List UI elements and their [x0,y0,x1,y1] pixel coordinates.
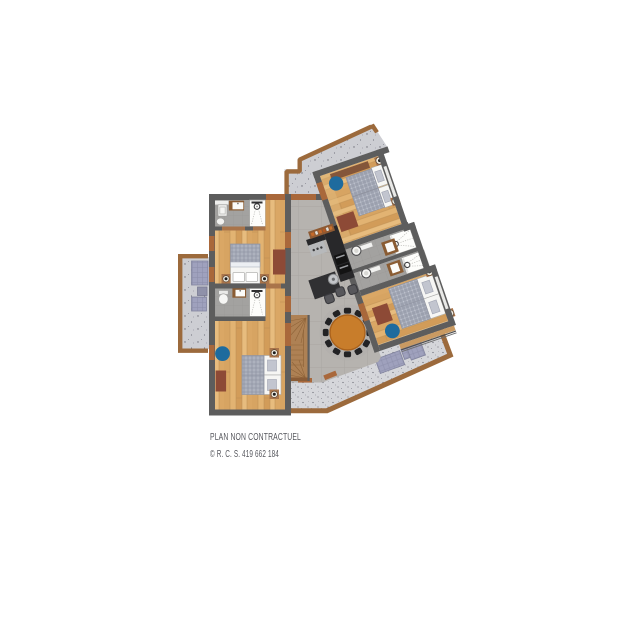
svg-text:© R. C. S. 419 662 184: © R. C. S. 419 662 184 [210,449,279,460]
svg-text:PLAN NON CONTRACTUEL: PLAN NON CONTRACTUEL [210,432,301,443]
